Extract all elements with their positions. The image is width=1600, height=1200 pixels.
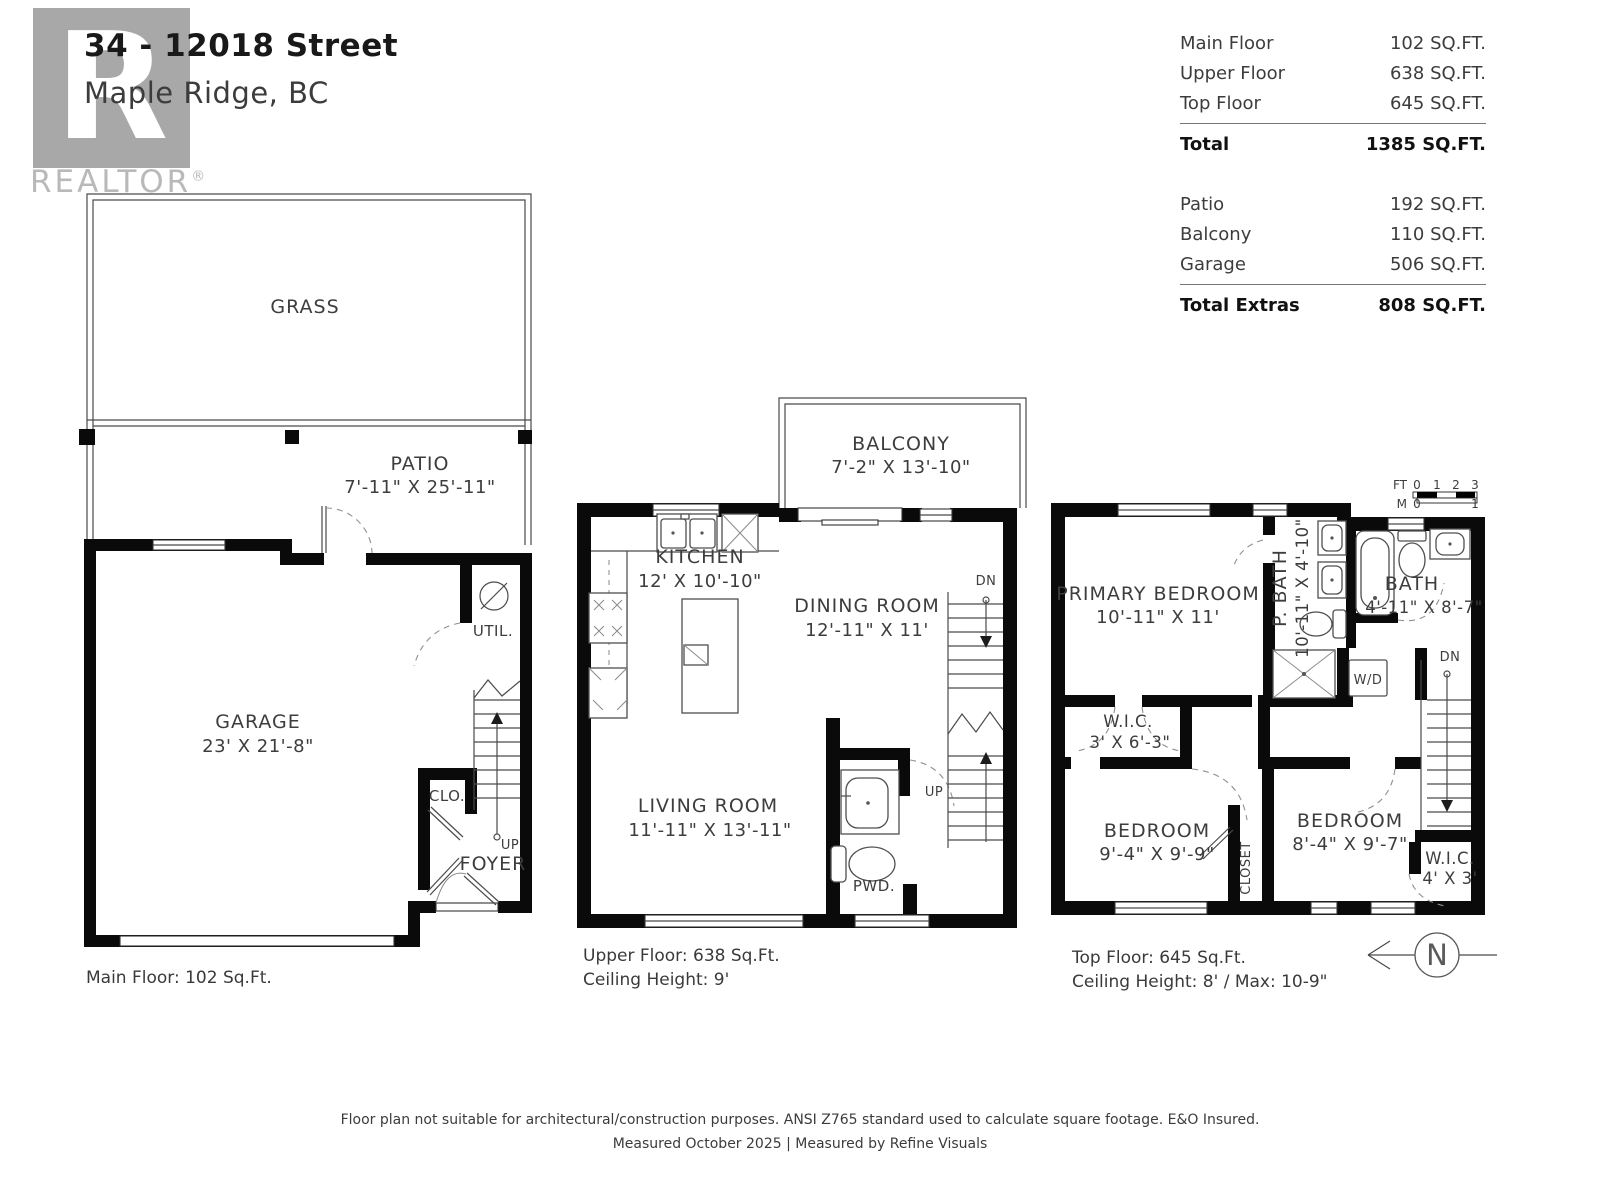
bedroom2-dims: 8'-4" X 9'-7" bbox=[1292, 834, 1408, 855]
bath-toilet-icon bbox=[1398, 531, 1426, 577]
garage-door-opening bbox=[120, 936, 394, 946]
ensuite-door-arc bbox=[1233, 540, 1263, 568]
svg-text:3: 3 bbox=[1471, 478, 1479, 492]
wic2-dims: 4' X 3' bbox=[1422, 869, 1477, 888]
top-floor-caption: Top Floor: 645 Sq.Ft. Ceiling Height: 8'… bbox=[1072, 946, 1328, 994]
stairs-down bbox=[1421, 660, 1471, 830]
pwd-sink-icon bbox=[841, 770, 899, 834]
primary-bedroom-windows bbox=[1118, 504, 1287, 516]
svg-text:1: 1 bbox=[1433, 478, 1441, 492]
balcony-sliding-door bbox=[798, 508, 902, 525]
garage-label: GARAGE bbox=[215, 711, 301, 733]
patio-door bbox=[322, 506, 372, 553]
island-counter bbox=[682, 599, 738, 713]
grass-label: GRASS bbox=[270, 296, 339, 318]
balcony-dims: 7'-2" X 13'-10" bbox=[831, 457, 970, 478]
ensuite-sink-icons bbox=[1318, 521, 1346, 598]
floor-plan-sheet: R REALTOR® 34 - 12018 Street Maple Ridge… bbox=[0, 0, 1600, 1200]
top-floor-ceiling: Ceiling Height: 8' / Max: 10-9" bbox=[1072, 970, 1328, 994]
stairs-up-label: UP bbox=[925, 785, 943, 800]
bedroom2-door-arc bbox=[1353, 769, 1395, 813]
stove-icon bbox=[589, 593, 627, 643]
primary-bedroom-label: PRIMARY BEDROOM bbox=[1056, 583, 1259, 605]
living-room-label: LIVING ROOM bbox=[638, 795, 778, 817]
bath-dims: 4'-11" X 8'-7" bbox=[1365, 598, 1482, 617]
electrical-panel-icon bbox=[480, 582, 508, 610]
top-floor-plan: PRIMARY BEDROOM 10'-11" X 11' P. BATH 10… bbox=[1051, 503, 1485, 915]
dining-window bbox=[920, 509, 952, 521]
pwd-window bbox=[855, 915, 929, 927]
north-compass: N bbox=[1368, 933, 1497, 977]
scale-bar: FT 0 1 2 3 M 0 1 bbox=[1393, 478, 1479, 511]
closet-label: CLOSET bbox=[1239, 841, 1254, 895]
garage-foyer-door bbox=[427, 858, 462, 895]
bedroom1-dims: 9'-4" X 9'-9" bbox=[1099, 844, 1215, 865]
bedroom2-label: BEDROOM bbox=[1297, 810, 1403, 832]
utility-door-arc bbox=[414, 623, 460, 666]
closet-label: CLO. bbox=[429, 787, 465, 805]
powder-room-label: PWD. bbox=[853, 877, 895, 895]
svg-text:0: 0 bbox=[1413, 497, 1421, 511]
svg-text:2: 2 bbox=[1452, 478, 1460, 492]
balcony-label: BALCONY bbox=[852, 433, 950, 455]
disclaimer-line2: Measured October 2025 | Measured by Refi… bbox=[0, 1136, 1600, 1152]
stairs-up-down bbox=[948, 592, 1003, 848]
wic1-dims: 3' X 6'-3" bbox=[1090, 733, 1171, 752]
foyer-label: FOYER bbox=[460, 853, 527, 875]
entry-threshold bbox=[436, 903, 498, 911]
utility-label: UTIL. bbox=[473, 622, 513, 640]
wic1-label: W.I.C. bbox=[1103, 712, 1153, 731]
primary-bedroom-dims: 10'-11" X 11' bbox=[1096, 607, 1220, 628]
disclaimer-line1: Floor plan not suitable for architectura… bbox=[0, 1112, 1600, 1128]
bedroom1-label: BEDROOM bbox=[1104, 820, 1210, 842]
floor-plans-drawing: GRASS PATIO 7'-11" X 25'-11" GARAGE 23' … bbox=[0, 0, 1600, 1200]
bath-window bbox=[1388, 518, 1424, 530]
stairs-down-label: DN bbox=[976, 574, 997, 589]
garage-window bbox=[153, 540, 225, 550]
stairs-up-label: UP bbox=[501, 838, 519, 853]
main-floor-plan: GRASS PATIO 7'-11" X 25'-11" GARAGE 23' … bbox=[79, 194, 532, 947]
dining-room-dims: 12'-11" X 11' bbox=[805, 620, 929, 641]
bath-label: BATH bbox=[1385, 573, 1439, 595]
stairs-down-label: DN bbox=[1440, 650, 1461, 665]
patio-dims: 7'-11" X 25'-11" bbox=[344, 477, 495, 498]
patio-posts bbox=[79, 429, 532, 445]
scale-ft-label: FT bbox=[1393, 478, 1408, 492]
fridge-icon bbox=[589, 668, 627, 718]
bath-sink-icon bbox=[1430, 529, 1470, 559]
patio-label: PATIO bbox=[391, 453, 450, 475]
dining-room-label: DINING ROOM bbox=[794, 595, 940, 617]
svg-text:0: 0 bbox=[1413, 478, 1421, 492]
top-floor-area: Top Floor: 645 Sq.Ft. bbox=[1072, 946, 1328, 970]
upper-floor-ceiling: Ceiling Height: 9' bbox=[583, 968, 780, 992]
primary-bath-dims: 10'-11" X 4'-10" bbox=[1293, 518, 1312, 657]
upper-floor-walls bbox=[577, 503, 1017, 928]
stairs-up bbox=[474, 680, 520, 840]
primary-bath-label: P. BATH bbox=[1269, 549, 1291, 627]
kitchen-dims: 12' X 10'-10" bbox=[638, 571, 762, 592]
svg-text:1: 1 bbox=[1471, 497, 1479, 511]
upper-floor-plan: BALCONY 7'-2" X 13'-10" KITCHEN 12' X 10… bbox=[577, 398, 1026, 928]
washer-dryer-label: W/D bbox=[1354, 673, 1383, 688]
wic2-label: W.I.C. bbox=[1425, 849, 1475, 868]
scale-m-label: M bbox=[1397, 497, 1407, 511]
living-window bbox=[645, 915, 803, 927]
north-letter: N bbox=[1426, 938, 1448, 972]
main-floor-caption: Main Floor: 102 Sq.Ft. bbox=[86, 966, 272, 990]
closet-door bbox=[428, 807, 463, 840]
living-room-dims: 11'-11" X 13'-11" bbox=[628, 820, 791, 841]
garage-dims: 23' X 21'-8" bbox=[202, 736, 314, 757]
kitchen-label: KITCHEN bbox=[655, 546, 744, 568]
upper-floor-caption: Upper Floor: 638 Sq.Ft. Ceiling Height: … bbox=[583, 944, 780, 992]
upper-floor-area: Upper Floor: 638 Sq.Ft. bbox=[583, 944, 780, 968]
